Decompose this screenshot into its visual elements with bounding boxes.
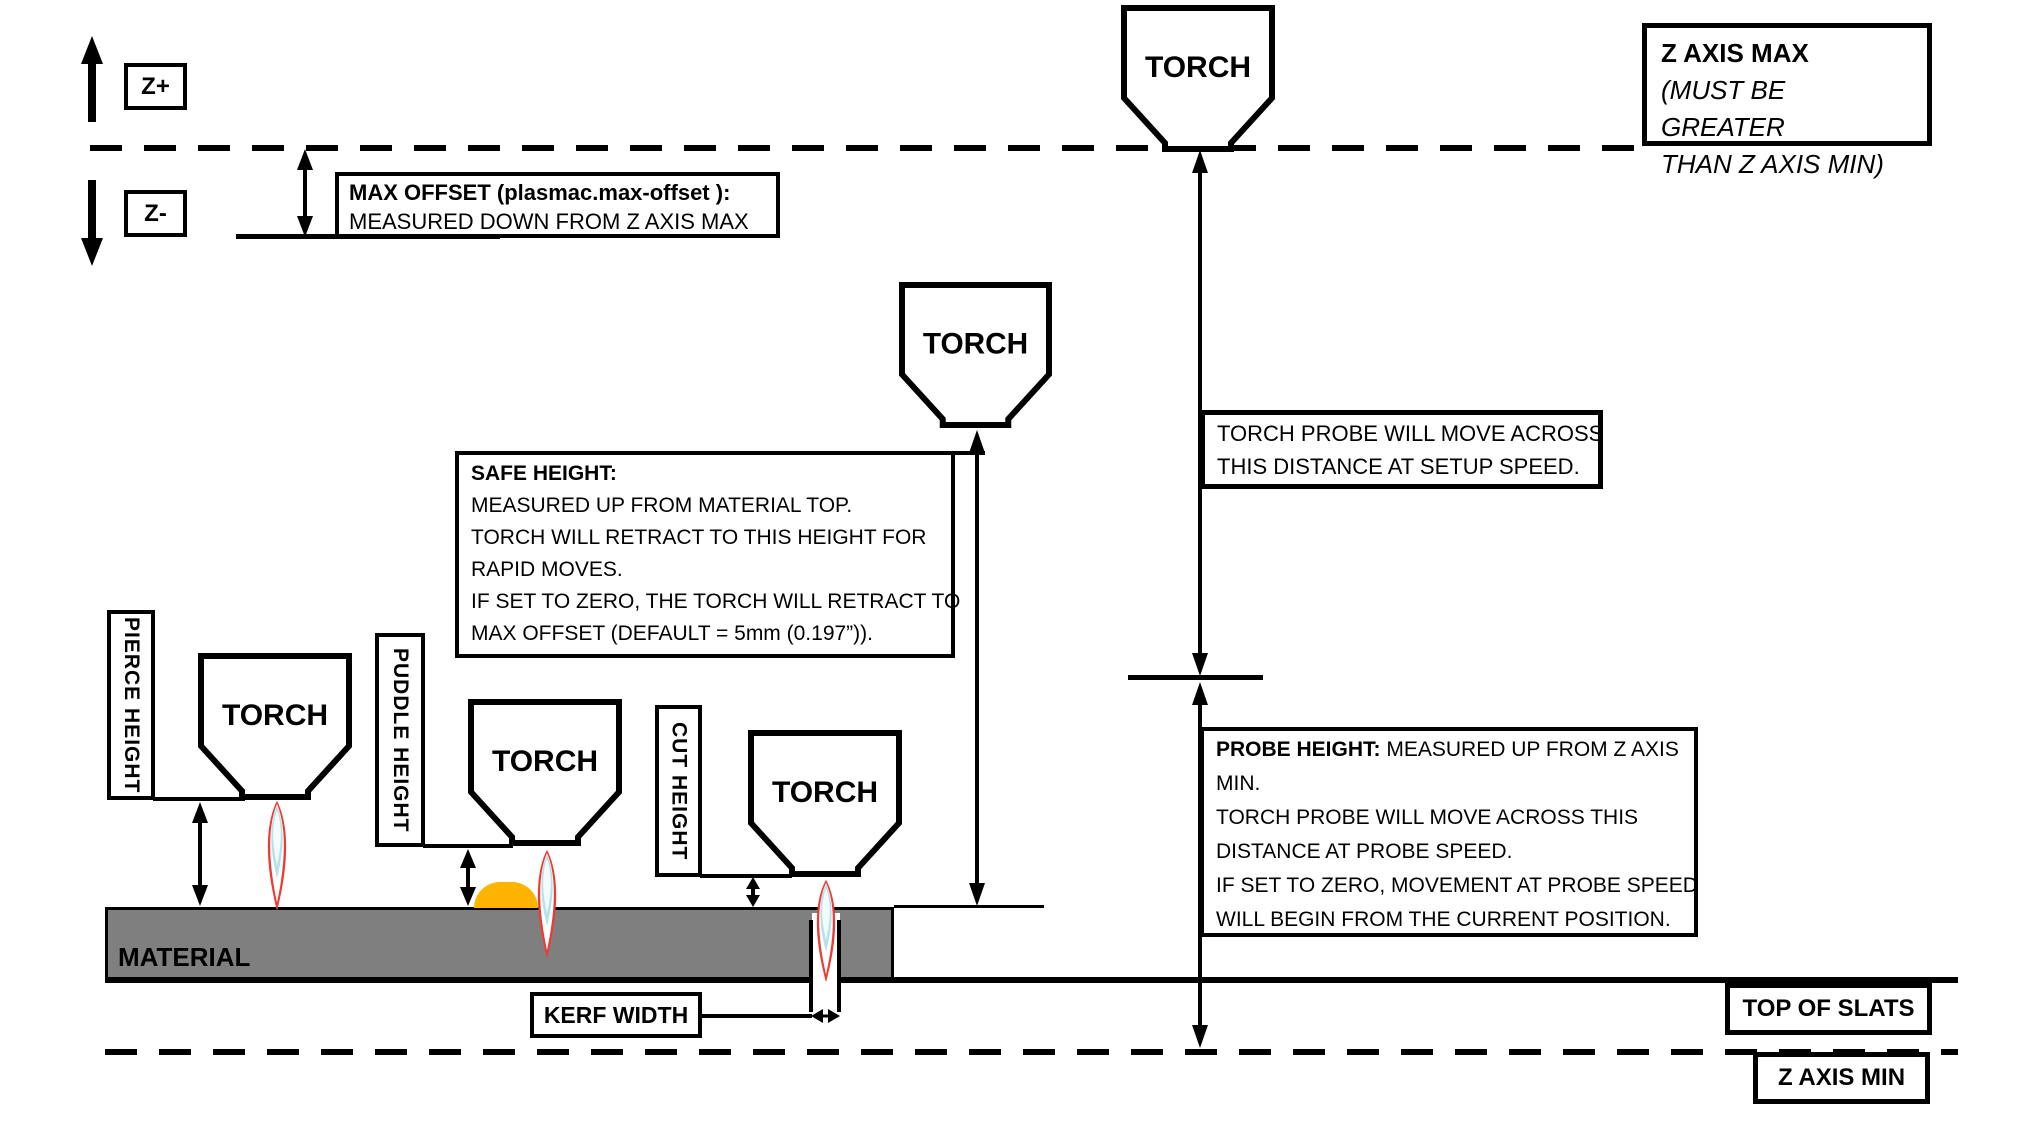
z-plus-label: Z+ xyxy=(141,73,170,101)
probe-height-line-3: DISTANCE AT PROBE SPEED. xyxy=(1216,835,1682,869)
cut-flame-icon xyxy=(804,879,848,983)
safe-height-line-4: IF SET TO ZERO, THE TORCH WILL RETRACT T… xyxy=(471,586,939,618)
pierce-height-label-box: PIERCE HEIGHT xyxy=(107,610,155,800)
torch-probe-text-1: TORCH PROBE WILL MOVE ACROSS xyxy=(1217,417,1586,451)
puddle-height-label: PUDDLE HEIGHT xyxy=(388,648,412,833)
max-offset-title: MAX OFFSET (plasmac.max-offset ): xyxy=(349,178,766,208)
z-axis-min-label: Z AXIS MIN xyxy=(1778,1064,1905,1092)
z-plus-label-box: Z+ xyxy=(124,63,187,110)
torch-z-max-label: TORCH xyxy=(1145,51,1251,84)
torch-safe-height: TORCH xyxy=(898,282,1053,428)
max-offset-text: MEASURED DOWN FROM Z AXIS MAX xyxy=(349,208,766,236)
cut-height-label: CUT HEIGHT xyxy=(667,722,691,860)
top-of-slats-box: TOP OF SLATS xyxy=(1725,983,1932,1035)
torch-cut: TORCH xyxy=(748,730,902,877)
kerf-width-arrow xyxy=(810,1007,841,1025)
kerf-width-box: KERF WIDTH xyxy=(530,992,702,1038)
max-offset-box: MAX OFFSET (plasmac.max-offset ): MEASUR… xyxy=(335,172,780,238)
puddle-flame-icon xyxy=(525,849,569,959)
probe-height-line-4: IF SET TO ZERO, MOVEMENT AT PROBE SPEED xyxy=(1216,869,1682,903)
safe-height-line-5: MAX OFFSET (DEFAULT = 5mm (0.197”)). xyxy=(471,618,939,650)
torch-puddle-label: TORCH xyxy=(492,745,598,778)
top-of-slats-label: TOP OF SLATS xyxy=(1742,995,1914,1023)
kerf-width-label: KERF WIDTH xyxy=(544,1002,688,1029)
probe-height-title-rest: MEASURED UP FROM Z AXIS xyxy=(1386,738,1679,761)
z-minus-arrow-icon xyxy=(78,180,106,266)
puddle-height-label-box: PUDDLE HEIGHT xyxy=(375,633,425,847)
safe-height-line-3: RAPID MOVES. xyxy=(471,554,939,586)
probe-height-line-1: MIN. xyxy=(1216,767,1682,801)
z-axis-min-dashed-line xyxy=(105,1049,1958,1055)
z-plus-arrow-icon xyxy=(78,36,106,122)
plasmac-heights-diagram: Z+ Z- MAX OFFSET (plasmac.max-offset ): … xyxy=(0,0,2038,1145)
torch-pierce-label: TORCH xyxy=(222,699,328,732)
z-minus-label-box: Z- xyxy=(124,190,187,237)
probe-height-tick-line xyxy=(1128,675,1263,680)
safe-height-box: SAFE HEIGHT: MEASURED UP FROM MATERIAL T… xyxy=(455,451,955,658)
safe-height-line-1: MEASURED UP FROM MATERIAL TOP. xyxy=(471,490,939,522)
cut-height-label-box: CUT HEIGHT xyxy=(655,705,702,877)
top-of-slats-line xyxy=(105,977,1958,983)
z-axis-max-note-1: (MUST BE GREATER xyxy=(1661,72,1913,146)
pierce-flame-icon xyxy=(255,800,299,912)
cut-height-measure-arrow xyxy=(739,877,767,907)
probe-height-line-2: TORCH PROBE WILL MOVE ACROSS THIS xyxy=(1216,801,1682,835)
z-axis-min-box: Z AXIS MIN xyxy=(1753,1052,1930,1104)
pierce-height-measure-arrow xyxy=(186,801,214,907)
torch-pierce: TORCH xyxy=(198,653,352,800)
kerf-dimension-line xyxy=(702,1014,812,1018)
z-axis-max-note-2: THAN Z AXIS MIN) xyxy=(1661,146,1913,183)
probe-height-title: PROBE HEIGHT: xyxy=(1216,738,1381,761)
safe-height-measure-arrow xyxy=(963,429,991,907)
z-axis-max-title: Z AXIS MAX xyxy=(1661,34,1913,72)
probe-height-box: PROBE HEIGHT: MEASURED UP FROM Z AXIS MI… xyxy=(1200,727,1698,937)
material-top-extension-line xyxy=(894,905,1044,908)
z-axis-max-box: Z AXIS MAX (MUST BE GREATER THAN Z AXIS … xyxy=(1642,23,1932,146)
safe-height-title: SAFE HEIGHT: xyxy=(471,458,939,490)
probe-height-line-5: WILL BEGIN FROM THE CURRENT POSITION. xyxy=(1216,903,1682,937)
z-minus-label: Z- xyxy=(144,200,167,228)
torch-safe-height-label: TORCH xyxy=(923,328,1028,361)
z-axis-max-dashed-line xyxy=(90,145,1640,151)
torch-puddle: TORCH xyxy=(468,698,622,847)
material-label: MATERIAL xyxy=(118,942,250,973)
torch-probe-box: TORCH PROBE WILL MOVE ACROSS THIS DISTAN… xyxy=(1200,410,1603,489)
safe-height-line-2: TORCH WILL RETRACT TO THIS HEIGHT FOR xyxy=(471,522,939,554)
torch-z-max: TORCH xyxy=(1121,5,1275,152)
max-offset-measure-arrow xyxy=(291,148,319,238)
torch-cut-label: TORCH xyxy=(772,776,878,809)
pierce-height-label: PIERCE HEIGHT xyxy=(119,617,143,793)
torch-probe-text-2: THIS DISTANCE AT SETUP SPEED. xyxy=(1217,451,1586,483)
